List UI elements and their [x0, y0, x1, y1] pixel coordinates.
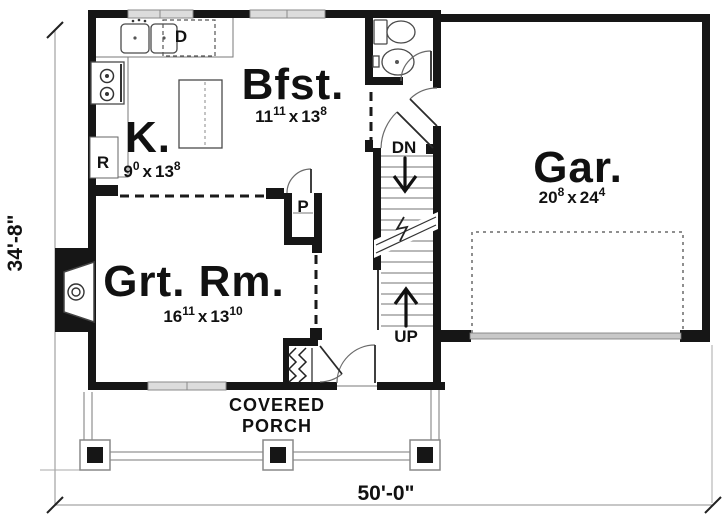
wall-garage-left-lower — [433, 126, 441, 390]
wall-stub-kitchen-opening — [96, 185, 118, 196]
porch-post-icon — [87, 447, 103, 463]
stairs-down-label: DN — [392, 138, 417, 157]
porch-post-icon — [270, 447, 286, 463]
great-room-label: Grt. Rm. — [103, 257, 285, 306]
entry-closet — [289, 348, 312, 382]
garage-dim: 208x244 — [539, 185, 606, 207]
bath-fixtures — [373, 20, 415, 75]
sink-drain-icon — [395, 60, 399, 64]
toilet-tank-icon — [374, 20, 387, 44]
porch-label-line1: COVERED — [229, 395, 325, 415]
dishwasher-label: D — [175, 27, 187, 46]
floor-plan-drawing: K. 90x138 Bfst. 1111x138 Grt. Rm. 1611x1… — [0, 0, 725, 519]
porch-post-icon — [417, 447, 433, 463]
front-door-arc — [337, 345, 375, 383]
burner-icon — [105, 74, 109, 78]
wall-left-lower — [88, 330, 96, 390]
pantry-door-arc — [287, 169, 311, 193]
hanger-hatch-icon — [289, 348, 296, 382]
wall-stub-foyer-top — [312, 245, 322, 253]
depth-dimension-label: 34'-8" — [4, 215, 27, 272]
faucet-icon — [373, 56, 379, 67]
faucet-icon — [138, 19, 141, 22]
refrigerator-label: R — [97, 153, 109, 172]
faucet-icon — [132, 20, 135, 23]
garage-overhead-door — [470, 333, 681, 339]
wall-stub-hall-left — [365, 140, 373, 152]
hanger-hatch-icon — [299, 348, 306, 382]
porch-label-line2: PORCH — [242, 416, 312, 436]
wall-garage-right — [702, 14, 710, 340]
wall-garage-bottom-right — [680, 330, 710, 342]
wall-pantry-bottom — [284, 237, 322, 245]
wall-bottom-main — [88, 382, 445, 390]
wall-bath-bottom — [365, 77, 403, 85]
kitchen-island — [179, 80, 222, 148]
wall-closet-left — [283, 338, 289, 386]
porch-post — [410, 440, 440, 470]
wall-garage-bottom-left — [441, 330, 471, 342]
pantry-label: P — [297, 197, 308, 216]
sink-drain-icon — [133, 36, 136, 39]
great-room-dim: 1611x1310 — [163, 304, 243, 326]
closet-door — [320, 346, 342, 374]
breakfast-label: Bfst. — [242, 60, 345, 109]
faucet-icon — [144, 20, 147, 23]
stairs-up-label: UP — [394, 327, 418, 346]
kitchen-label: K. — [125, 113, 171, 162]
wall-stub-pantry-opening — [266, 188, 284, 199]
kitchen-dim: 90x138 — [123, 159, 181, 181]
closet-door-arc — [320, 374, 342, 382]
floor-plan-page: K. 90x138 Bfst. 1111x138 Grt. Rm. 1611x1… — [0, 0, 725, 519]
porch-post — [263, 440, 293, 470]
fireplace — [64, 262, 94, 322]
garage-door-track-dashed — [472, 232, 683, 333]
wall-top-garage — [441, 14, 710, 22]
wall-garage-left-upper — [433, 10, 441, 88]
wall-bath-left — [365, 10, 373, 84]
wall-left-upper — [88, 10, 96, 250]
toilet-bowl-icon — [387, 21, 415, 43]
staircase — [374, 156, 438, 330]
garage-label: Gar. — [533, 143, 623, 192]
breakfast-dim: 1111x138 — [255, 104, 327, 126]
garage-service-door-arc — [410, 88, 437, 99]
width-dimension-label: 50'-0" — [358, 482, 415, 505]
porch-post — [80, 440, 110, 470]
burner-icon — [105, 92, 109, 96]
garage-service-door — [410, 99, 437, 126]
